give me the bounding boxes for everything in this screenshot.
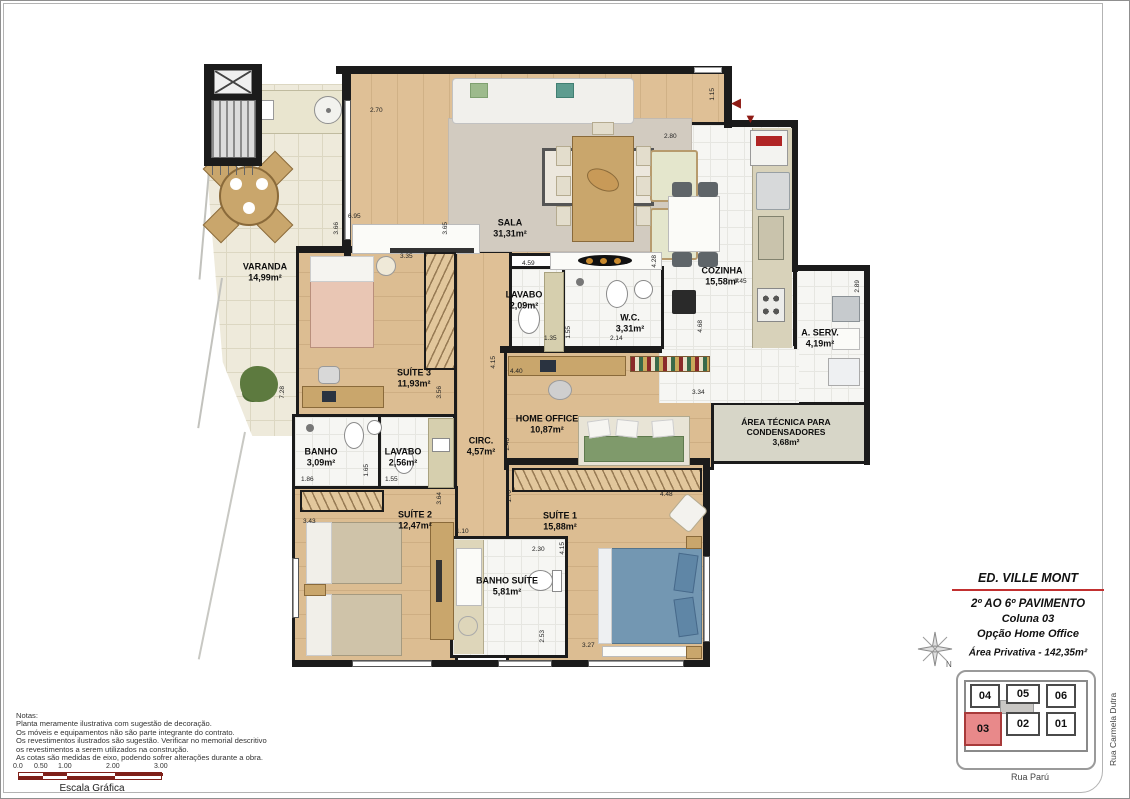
dim-label: 4.15	[491, 356, 498, 369]
dim-label: 3.65	[443, 222, 450, 235]
room-label-area-tecnica: ÁREA TÉCNICA PARA CONDENSADORES3,68m²	[727, 417, 845, 447]
sofa-pillow	[470, 83, 488, 98]
dining-chair	[556, 206, 571, 226]
wall	[724, 120, 798, 127]
sink-icon	[432, 438, 450, 452]
wall	[864, 265, 870, 465]
bed-pillow	[310, 256, 374, 282]
tray-dot	[586, 258, 593, 264]
dresser	[430, 522, 454, 640]
room-label-lavabo-2: LAVABO2,56m²	[385, 446, 422, 467]
dim-label: 2.14	[610, 336, 623, 343]
dim-label: 4.68	[698, 320, 705, 333]
dim-label: 3.64	[437, 492, 444, 505]
toilet-icon	[606, 280, 628, 308]
nightstand-lamp-icon	[376, 256, 396, 276]
bed-sheet	[598, 548, 612, 644]
room-label-suite-1: SUÍTE 115,88m²	[543, 510, 577, 531]
key-plan-unit-05: 05	[1006, 684, 1040, 704]
building-name: ED. VILLE MONT	[978, 571, 1078, 585]
dining-chair	[636, 176, 651, 196]
bed-pillow	[306, 594, 332, 656]
scale-bar	[18, 772, 162, 780]
key-plan-unit-02: 02	[1006, 712, 1040, 736]
window	[292, 558, 299, 618]
room-label-lavabo-1: LAVABO2,09m²	[506, 289, 543, 310]
plate	[230, 178, 242, 190]
dim-label: 3.66	[334, 222, 341, 235]
private-area-label: Área Privativa - 142,35m²	[969, 648, 1087, 659]
wardrobe	[300, 490, 384, 512]
sofa-pillow	[587, 419, 611, 439]
dim-label: 2.80	[664, 134, 677, 141]
desk	[302, 386, 384, 408]
plate	[256, 178, 268, 190]
room-label-banho-suite: BANHO SUÍTE5,81m²	[476, 575, 538, 596]
sofa-pillow	[615, 419, 639, 438]
dim-label: 4.28	[652, 255, 659, 268]
wall	[791, 265, 870, 271]
scale-tick-label: 0.0	[13, 763, 23, 770]
nightstand	[686, 646, 702, 659]
dim-label: 6.95	[348, 214, 361, 221]
microwave-icon	[756, 136, 782, 146]
tray-dot	[600, 258, 607, 264]
bed-pillow	[306, 522, 332, 584]
dim-label: 4.48	[660, 492, 673, 499]
room-label-suite-3: SUÍTE 311,93m²	[397, 367, 431, 388]
shower-head-icon	[306, 424, 314, 432]
round-table	[219, 166, 279, 226]
notes-block: Notas: Planta meramente ilustrativa com …	[16, 712, 267, 762]
title-rule	[952, 589, 1104, 591]
window	[498, 660, 552, 667]
stair-ticks-icon	[212, 166, 256, 175]
key-plan-unit-06: 06	[1046, 684, 1076, 708]
sink-drain	[326, 108, 331, 113]
room-label-wc: W.C.3,31m²	[616, 312, 645, 333]
key-plan-unit-01: 01	[1046, 712, 1076, 736]
nightstand	[304, 584, 326, 596]
dim-label: 2.70	[370, 108, 383, 115]
kitchen-chair	[672, 252, 692, 267]
column-label: Coluna 03	[1002, 613, 1055, 625]
dim-label: 1.70	[507, 490, 514, 503]
room-label-cozinha: COZINHA15,58m²	[702, 265, 743, 286]
toilet-icon	[344, 422, 364, 449]
sofa-pillow	[651, 419, 674, 438]
office-desk	[508, 356, 626, 376]
tv-icon	[436, 560, 442, 602]
dining-chair	[592, 122, 614, 135]
closet	[424, 252, 456, 370]
shaft-x-box-icon	[214, 70, 252, 94]
room-label-aserv: A. SERV.4,19m²	[801, 327, 839, 348]
room-label-circ: CIRC.4,57m²	[467, 435, 496, 456]
dim-label: 2.30	[532, 547, 545, 554]
bookshelf	[630, 356, 710, 372]
dim-label: 2.89	[855, 280, 862, 293]
dining-chair	[556, 146, 571, 166]
fridge	[756, 172, 790, 210]
scale-tick-label: 0.50	[34, 763, 48, 770]
laptop-icon	[540, 360, 556, 372]
dim-label: 1.10	[456, 529, 469, 536]
bed-bench	[602, 646, 694, 657]
dim-label: 2.46	[505, 438, 512, 451]
dim-label: 1.55	[566, 326, 573, 339]
notes-line: As cotas são medidas de eixo, podendo so…	[16, 754, 267, 762]
dim-label: 3.34	[692, 390, 705, 397]
dim-label: 3.56	[437, 386, 444, 399]
shower-head-icon	[576, 278, 584, 286]
scale-tick-label: 2.00	[106, 763, 120, 770]
room-label-suite-2: SUÍTE 212,47m²	[398, 509, 432, 530]
dim-label: 4.15	[560, 542, 567, 555]
wardrobe	[512, 468, 702, 492]
cooktop-icon	[757, 288, 785, 322]
kitchen-sink-icon	[758, 216, 784, 260]
bathtub-toilet-tank	[552, 570, 562, 592]
wall	[500, 346, 662, 353]
wall	[791, 120, 798, 272]
entry-arrow-left-icon: ◀	[731, 96, 741, 109]
office-chair	[548, 380, 572, 400]
scale-tick-label: 3.00	[154, 763, 168, 770]
plate	[243, 202, 255, 214]
window	[352, 660, 432, 667]
dim-label: 2.53	[540, 630, 547, 643]
dim-label: 1.35	[544, 336, 557, 343]
dim-label: 1.15	[710, 88, 717, 101]
kitchen-chair	[672, 182, 692, 197]
round-sink-icon	[634, 280, 653, 299]
entry-door-gap	[694, 67, 722, 73]
key-plan-unit-04: 04	[970, 684, 1000, 708]
dim-label: 1.86	[301, 477, 314, 484]
washing-machine	[832, 296, 860, 322]
compass-north-label: N	[946, 660, 952, 669]
vanity	[428, 418, 454, 488]
nightstand	[686, 536, 702, 549]
shaft-hatch-icon	[211, 100, 256, 158]
scale-tick-label: 1.00	[58, 763, 72, 770]
room-label-varanda: VARANDA14,99m²	[243, 261, 287, 282]
dim-label: 7.28	[280, 386, 287, 399]
dim-label: 1.65	[364, 464, 371, 477]
shower-drain-icon	[458, 616, 478, 636]
kitchen-chair	[698, 182, 718, 197]
dim-label: 3.35	[400, 254, 413, 261]
option-label: Opção Home Office	[977, 628, 1079, 640]
round-sink-icon	[367, 420, 382, 435]
scale-caption: Escala Gráfica	[59, 783, 124, 794]
window	[588, 660, 684, 667]
plant-icon	[240, 366, 278, 402]
entry-arrow-down-icon: ▼	[744, 112, 757, 125]
dining-chair	[556, 176, 571, 196]
room-label-banho: BANHO3,09m²	[305, 446, 338, 467]
dim-label: 3.43	[303, 519, 316, 526]
dim-label: 3.27	[582, 643, 595, 650]
oven-icon	[672, 290, 696, 314]
wall	[336, 66, 732, 74]
key-plan-unit-03: 03	[964, 712, 1002, 746]
room-label-sala: SALA31,31m²	[493, 217, 527, 238]
kitchen-table	[668, 196, 720, 252]
dining-chair	[636, 206, 651, 226]
office-chair	[318, 366, 340, 384]
dim-label: 4.40	[510, 369, 523, 376]
sofa-cushion	[584, 436, 684, 462]
floor-range: 2º AO 6º PAVIMENTO	[971, 598, 1085, 610]
room-label-home-office: HOME OFFICE10,87m²	[516, 413, 579, 434]
dim-label: 4.59	[522, 261, 535, 268]
tray-dot	[614, 258, 621, 264]
street-label-rua-paru: Rua Parú	[1011, 772, 1049, 782]
laptop-icon	[322, 391, 336, 402]
window	[703, 556, 710, 642]
dining-chair	[636, 146, 651, 166]
street-label-rua-carmela-dutra: Rua Carmela Dutra	[1108, 693, 1118, 766]
dim-label: 1.55	[385, 477, 398, 484]
laundry-shelf	[828, 358, 860, 386]
sofa-pillow	[556, 83, 574, 98]
